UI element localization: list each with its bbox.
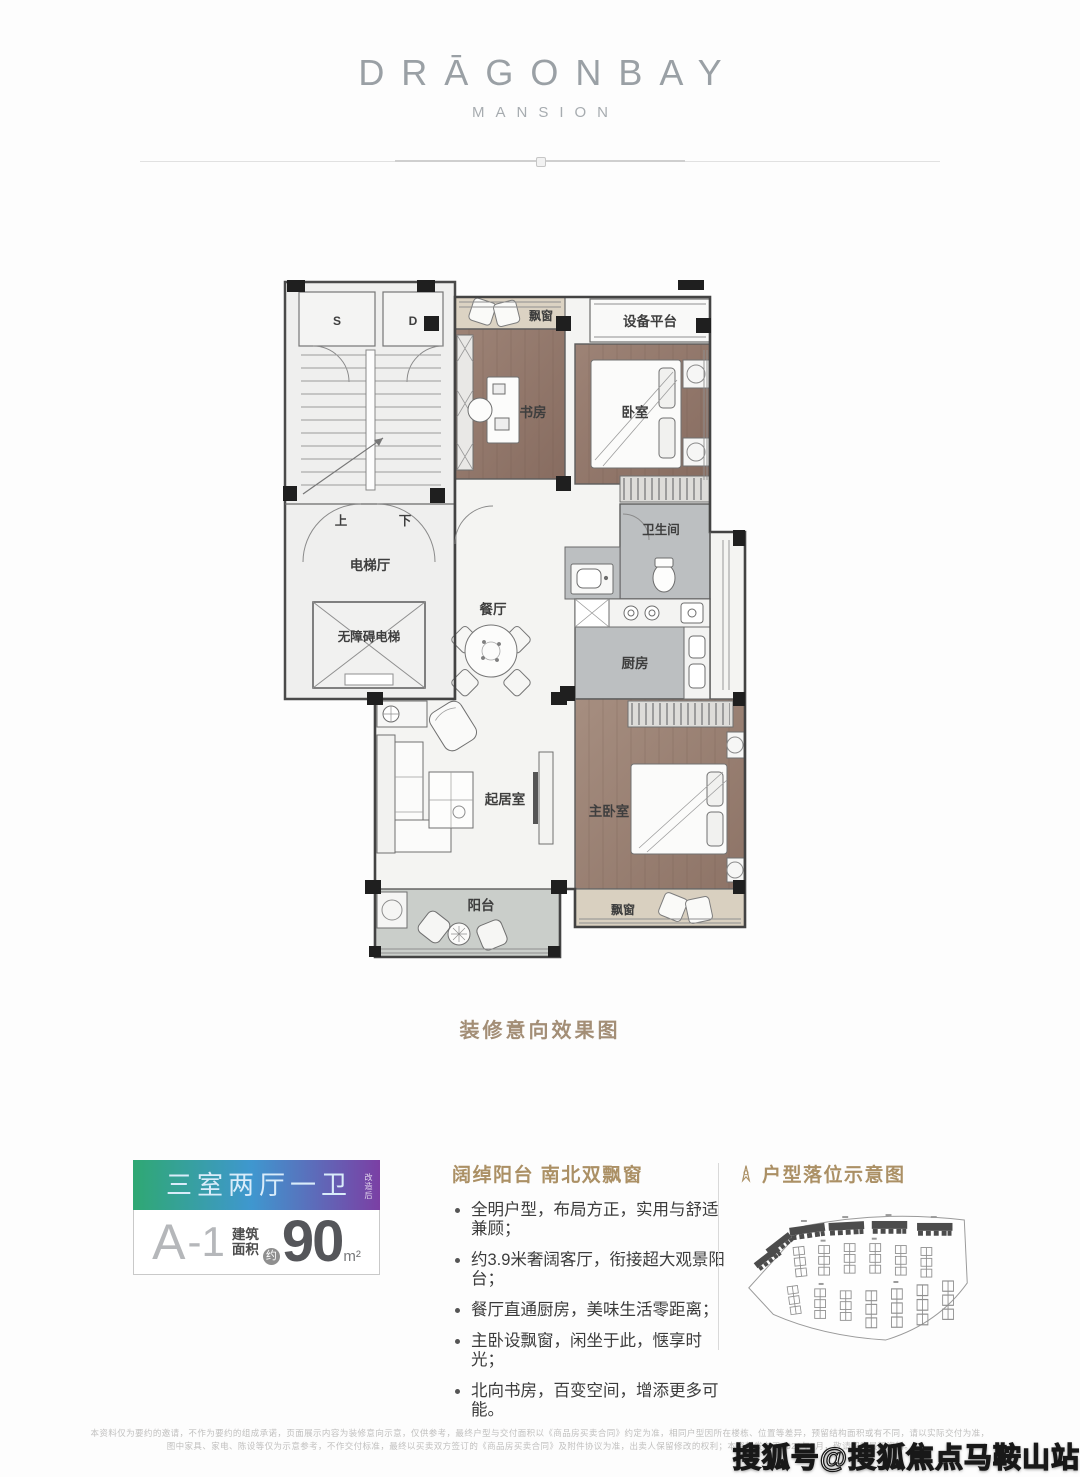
bay-window-bottom-label: 飘窗 xyxy=(611,902,635,917)
bedroom-label: 卧室 xyxy=(622,404,650,420)
stair-s-label: S xyxy=(333,314,341,328)
feature-list-section: 阔绰阳台 南北双飘窗 全明户型，布局方正，实用与舒适兼顾； 约3.9米奢阔客厅，… xyxy=(452,1160,732,1432)
area-label: 建筑 面积 xyxy=(232,1227,259,1257)
floor-plan-caption: 装修意向效果图 xyxy=(0,1014,1080,1043)
feature-list: 全明户型，布局方正，实用与舒适兼顾； 约3.9米奢阔客厅，衔接超大观景阳台； 餐… xyxy=(452,1201,732,1420)
study-label: 书房 xyxy=(520,404,547,420)
unit-area-box: A -1 建筑 面积 约 90 m² xyxy=(133,1210,380,1275)
feature-heading: 阔绰阳台 南北双飘窗 xyxy=(452,1160,732,1187)
brand-title: DRĀGONBAY xyxy=(0,52,1080,94)
accessible-elevator-shaft xyxy=(313,602,425,688)
siteplan-map xyxy=(736,1195,982,1367)
area-label-line2: 面积 xyxy=(232,1242,259,1257)
balcony-label: 阳台 xyxy=(468,897,495,913)
unit-type-label: 三室两厅一卫 xyxy=(166,1170,352,1200)
kitchen-label: 厨房 xyxy=(622,655,649,671)
equipment-platform-label: 设备平台 xyxy=(623,313,677,329)
accessible-elevator-label: 无障碍电梯 xyxy=(337,629,401,644)
section-divider xyxy=(718,1163,719,1350)
unit-number: -1 xyxy=(187,1221,224,1263)
area-value: 90 xyxy=(282,1213,343,1271)
brand-logo: DRĀGONBAY MANSION xyxy=(0,52,1080,121)
dining-label: 餐厅 xyxy=(479,601,507,617)
brand-subtitle: MANSION xyxy=(0,104,1080,121)
unit-letter: A xyxy=(152,1217,185,1267)
stair-up-label: 上 xyxy=(335,513,348,528)
area-label-line1: 建筑 xyxy=(232,1227,259,1242)
unit-type-note: 改造后 xyxy=(364,1168,373,1200)
header-divider xyxy=(140,157,940,167)
siteplan-section: 户型落位示意图 xyxy=(736,1160,986,1372)
living-label: 起居室 xyxy=(484,791,526,807)
master-bedroom-label: 主卧室 xyxy=(589,803,630,819)
watermark: 搜狐号@搜狐焦点马鞍山站 xyxy=(733,1436,1080,1476)
elevator-hall-label: 电梯厅 xyxy=(350,557,391,573)
area-unit: m² xyxy=(343,1248,361,1265)
feature-item: 全明户型，布局方正，实用与舒适兼顾； xyxy=(452,1201,732,1239)
stair-d-label: D xyxy=(409,314,418,328)
siteplan-heading: 户型落位示意图 xyxy=(762,1160,906,1187)
divider-ornament xyxy=(536,157,546,167)
stair-down-label: 下 xyxy=(399,514,412,528)
compass-icon xyxy=(736,1163,756,1185)
bay-window-top-label: 飘窗 xyxy=(529,308,553,323)
floor-plan: S D 上 下 电梯厅 无障碍电梯 飘窗 设备平台 书房 卧室 卫生间 餐厅 厨… xyxy=(283,280,763,986)
unit-type-bar: 三室两厅一卫 改造后 xyxy=(133,1160,380,1210)
feature-item: 主卧设飘窗，闲坐于此，惬享时光； xyxy=(452,1332,732,1370)
floor-plan-svg: S D 上 下 电梯厅 无障碍电梯 飘窗 设备平台 书房 卧室 卫生间 餐厅 厨… xyxy=(283,280,763,986)
feature-item: 北向书房，百变空间，增添更多可能。 xyxy=(452,1382,732,1420)
siteplan-header: 户型落位示意图 xyxy=(736,1160,986,1187)
feature-item: 约3.9米奢阔客厅，衔接超大观景阳台； xyxy=(452,1251,732,1289)
unit-info-card: 三室两厅一卫 改造后 A -1 建筑 面积 约 90 m² xyxy=(133,1160,380,1275)
bathroom-label: 卫生间 xyxy=(642,522,680,537)
feature-item: 餐厅直通厨房，美味生活零距离； xyxy=(452,1301,732,1320)
approx-badge: 约 xyxy=(263,1248,280,1265)
